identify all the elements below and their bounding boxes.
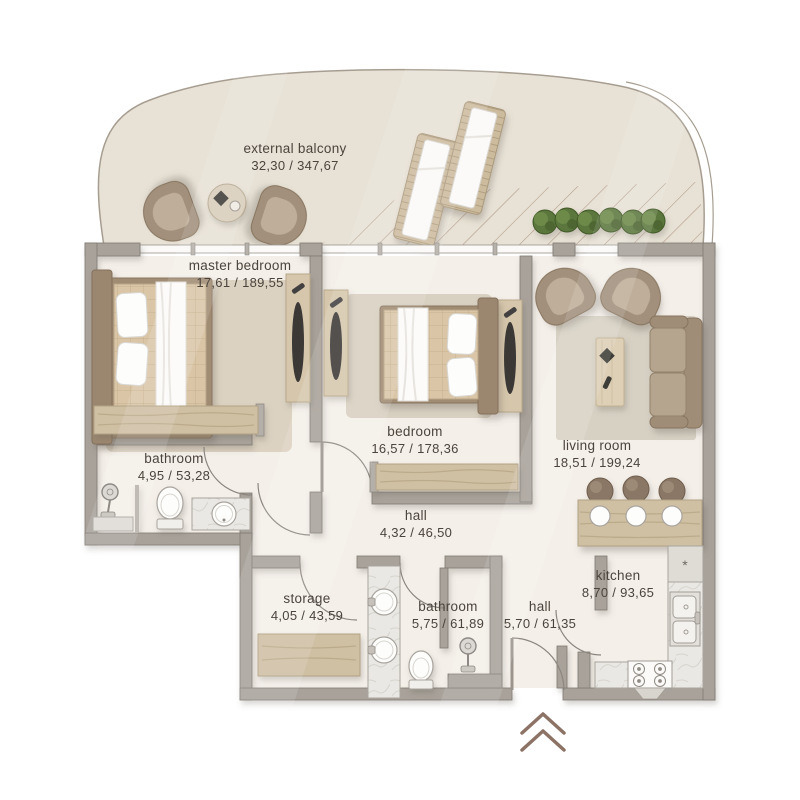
room-name: bedroom [371, 423, 458, 440]
room-name: hall [380, 507, 452, 524]
kitchen-sink [670, 592, 700, 646]
floor-plan: * [0, 0, 800, 800]
room-label-external-balcony: external balcony 32,30 / 347,67 [243, 140, 346, 174]
room-name: kitchen [582, 567, 654, 584]
room-label-kitchen: kitchen 8,70 / 93,65 [582, 567, 654, 601]
bench [94, 404, 264, 436]
room-name: master bedroom [189, 257, 292, 274]
room-area: 18,51 / 199,24 [553, 454, 640, 471]
room-area: 16,57 / 178,36 [371, 440, 458, 457]
room-area: 5,70 / 61,35 [504, 615, 576, 632]
room-label-master-bedroom: master bedroom 17,61 / 189,55 [189, 257, 292, 291]
room-area: 8,70 / 93,65 [582, 584, 654, 601]
sofa [650, 316, 702, 428]
shower-niche [93, 517, 133, 531]
room-label-bathroom-1: bathroom 4,95 / 53,28 [138, 450, 210, 484]
window-band [140, 243, 618, 255]
storage-shelf [258, 634, 360, 676]
toilet [157, 487, 183, 529]
bed [380, 298, 498, 414]
room-name: storage [271, 590, 343, 607]
room-label-storage: storage 4,05 / 43,59 [271, 590, 343, 624]
double-vanity [368, 566, 400, 698]
counter-marker: * [682, 557, 688, 573]
vanity-sink [192, 498, 250, 530]
kitchen-island [578, 500, 702, 546]
room-label-hall-1: hall 4,32 / 46,50 [380, 507, 452, 541]
room-name: living room [553, 437, 640, 454]
room-name: external balcony [243, 140, 346, 157]
room-label-hall-2: hall 5,70 / 61,35 [504, 598, 576, 632]
room-area: 4,95 / 53,28 [138, 467, 210, 484]
room-name: bathroom [138, 450, 210, 467]
balcony-terrace [98, 70, 713, 253]
room-label-living-room: living room 18,51 / 199,24 [553, 437, 640, 471]
room-area: 32,30 / 347,67 [243, 157, 346, 174]
room-name: bathroom [412, 598, 484, 615]
room-area: 4,32 / 46,50 [380, 524, 452, 541]
wardrobe [286, 274, 310, 402]
entrance-arrow-icon [522, 714, 564, 750]
coffee-table [596, 338, 624, 406]
room-area: 5,75 / 61,89 [412, 615, 484, 632]
room-area: 17,61 / 189,55 [189, 274, 292, 291]
room-label-bathroom-2: bathroom 5,75 / 61,89 [412, 598, 484, 632]
wardrobe [498, 300, 522, 412]
room-area: 4,05 / 43,59 [271, 607, 343, 624]
bench [370, 462, 518, 492]
balcony-side-table [208, 184, 246, 222]
wardrobe [324, 290, 348, 396]
room-label-bedroom: bedroom 16,57 / 178,36 [371, 423, 458, 457]
toilet [409, 651, 433, 689]
room-name: hall [504, 598, 576, 615]
floor-plan-drawing: * [0, 0, 800, 800]
